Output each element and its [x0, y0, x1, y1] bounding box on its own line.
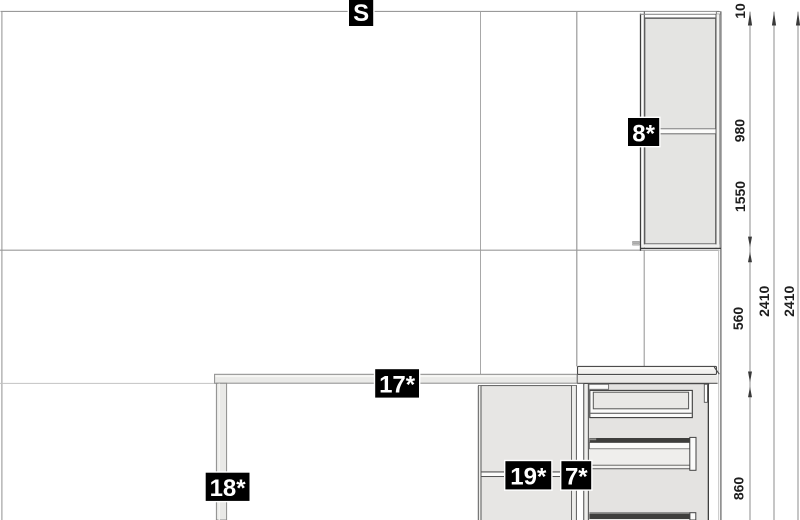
svg-text:S: S: [353, 0, 369, 27]
svg-text:2410: 2410: [781, 286, 797, 317]
svg-text:19*: 19*: [510, 464, 547, 491]
svg-text:7*: 7*: [565, 464, 588, 491]
svg-text:860: 860: [731, 477, 747, 501]
svg-text:18*: 18*: [210, 475, 247, 502]
svg-text:1550: 1550: [732, 181, 748, 212]
svg-text:2410: 2410: [756, 286, 772, 317]
svg-text:17*: 17*: [379, 372, 416, 399]
svg-text:8*: 8*: [632, 120, 655, 147]
svg-text:980: 980: [732, 119, 748, 143]
svg-text:560: 560: [730, 307, 746, 331]
svg-text:10: 10: [732, 3, 748, 19]
